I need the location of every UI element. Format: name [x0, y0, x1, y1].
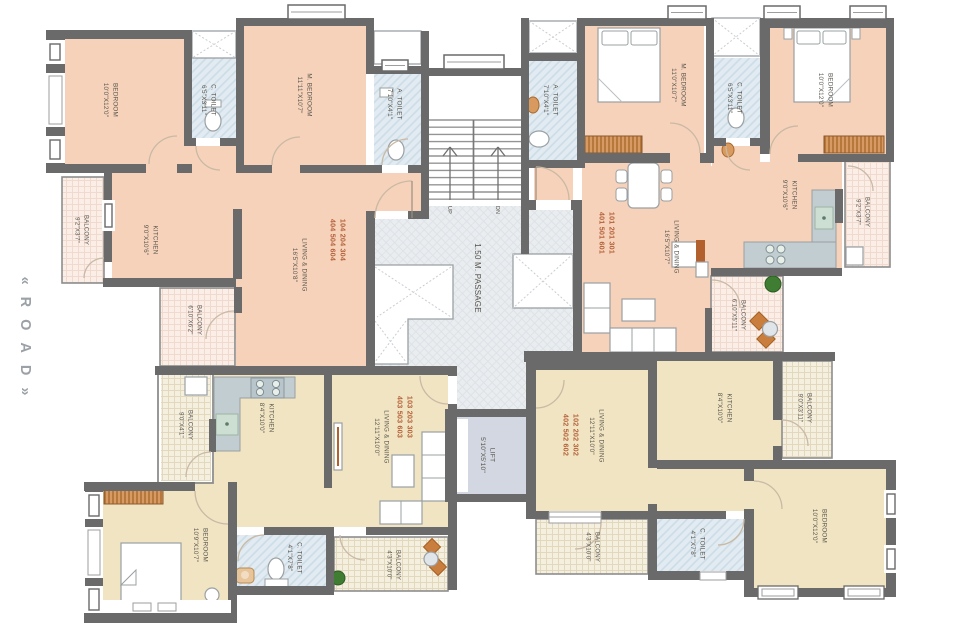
svg-text:9'0"X10'6": 9'0"X10'6": [142, 225, 149, 256]
svg-text:C. TOILET: C. TOILET: [736, 82, 743, 114]
svg-text:6'10"X5'11": 6'10"X5'11": [731, 299, 737, 331]
svg-text:BEDROOM: BEDROOM: [112, 83, 119, 117]
svg-text:1.50 M. PASSAGE: 1.50 M. PASSAGE: [473, 243, 482, 313]
svg-text:BEDROOM: BEDROOM: [821, 509, 828, 543]
svg-text:8'4"X10'0": 8'4"X10'0": [258, 403, 265, 434]
svg-text:BEDROOM: BEDROOM: [202, 528, 209, 562]
svg-text:BEDROOM: BEDROOM: [827, 73, 834, 107]
svg-text:401 501 601: 401 501 601: [597, 212, 606, 254]
svg-text:10'0"X12'0": 10'0"X12'0": [102, 83, 109, 117]
svg-text:KITCHEN: KITCHEN: [791, 180, 798, 209]
svg-text:BALCONY: BALCONY: [196, 305, 202, 335]
svg-text:LIVING & DINING: LIVING & DINING: [598, 409, 605, 462]
svg-text:16'5"X10'8": 16'5"X10'8": [291, 248, 298, 282]
svg-text:UP: UP: [446, 206, 452, 214]
svg-text:BALCONY: BALCONY: [395, 550, 401, 580]
svg-text:4'1"X7'8": 4'1"X7'8": [286, 545, 293, 572]
svg-text:104 204 304: 104 204 304: [339, 219, 348, 261]
svg-text:11'0"X10'7": 11'0"X10'7": [670, 68, 677, 102]
svg-text:404 504 604: 404 504 604: [328, 219, 337, 261]
svg-text:10'0"X12'0": 10'0"X12'0": [811, 509, 818, 543]
svg-text:102 202 302: 102 202 302: [572, 414, 581, 456]
svg-text:«ROAD»: «ROAD»: [17, 277, 33, 408]
svg-text:4'3"X10'0": 4'3"X10'0": [585, 532, 591, 561]
svg-text:16'5"X10'7": 16'5"X10'7": [663, 230, 670, 264]
svg-text:9'0"X3'11": 9'0"X3'11": [797, 394, 803, 423]
svg-text:BALCONY: BALCONY: [187, 410, 193, 440]
svg-text:12'11"X10'0": 12'11"X10'0": [588, 417, 595, 455]
svg-text:10'0"X12'0": 10'0"X12'0": [817, 73, 824, 107]
svg-text:BALCONY: BALCONY: [864, 197, 870, 227]
svg-text:BALCONY: BALCONY: [806, 393, 812, 423]
svg-text:M. BEDROOM: M. BEDROOM: [306, 73, 313, 116]
svg-text:C. TOILET: C. TOILET: [699, 528, 706, 560]
svg-text:C. TOILET: C. TOILET: [296, 542, 303, 574]
svg-text:9'2"X3'7": 9'2"X3'7": [855, 199, 861, 225]
svg-text:LIVING & DINING: LIVING & DINING: [383, 410, 390, 463]
svg-text:LIFT: LIFT: [489, 448, 496, 462]
svg-text:BALCONY: BALCONY: [594, 532, 600, 562]
svg-text:DN: DN: [494, 206, 500, 214]
svg-text:M. BEDROOM: M. BEDROOM: [680, 63, 687, 106]
svg-text:9'2"X3'7": 9'2"X3'7": [74, 217, 80, 243]
svg-text:4'1"X7'8": 4'1"X7'8": [689, 531, 696, 558]
svg-text:5'10"X5'10": 5'10"X5'10": [479, 437, 486, 473]
svg-text:C. TOILET: C. TOILET: [210, 84, 217, 116]
svg-text:7'10"X4'1": 7'10"X4'1": [386, 89, 393, 120]
svg-text:10'9"X10'7": 10'9"X10'7": [192, 528, 199, 562]
svg-text:A. TOILET: A. TOILET: [396, 88, 403, 119]
svg-text:LIVING & DINING: LIVING & DINING: [301, 238, 308, 291]
svg-text:8'4"X10'0": 8'4"X10'0": [716, 393, 723, 424]
svg-text:9'0"X4'1": 9'0"X4'1": [178, 412, 184, 438]
svg-text:403 503 603: 403 503 603: [395, 396, 404, 438]
svg-text:6'5"X3'11": 6'5"X3'11": [726, 83, 733, 113]
svg-text:BALCONY: BALCONY: [83, 215, 89, 245]
svg-text:LIVING & DINING: LIVING & DINING: [673, 220, 680, 273]
svg-text:KITCHEN: KITCHEN: [726, 393, 733, 422]
svg-text:KITCHEN: KITCHEN: [268, 403, 275, 432]
svg-text:101 201 301: 101 201 301: [608, 212, 617, 254]
svg-text:KITCHEN: KITCHEN: [152, 225, 159, 254]
svg-text:6'10"X6'2": 6'10"X6'2": [187, 305, 193, 334]
svg-text:6'5"X3'11": 6'5"X3'11": [200, 85, 207, 115]
svg-text:402 502 602: 402 502 602: [561, 414, 570, 456]
svg-text:BALCONY: BALCONY: [740, 300, 746, 330]
svg-text:9'0"X10'6": 9'0"X10'6": [781, 180, 788, 211]
svg-text:7'10"X4'1": 7'10"X4'1": [542, 85, 549, 116]
svg-text:11'11"X10'7": 11'11"X10'7": [296, 76, 303, 113]
svg-text:12'11"X10'0": 12'11"X10'0": [373, 418, 380, 456]
svg-text:4'3"X10'0": 4'3"X10'0": [386, 550, 392, 579]
svg-text:A. TOILET: A. TOILET: [552, 84, 559, 115]
svg-text:103 203 303: 103 203 303: [406, 396, 415, 438]
